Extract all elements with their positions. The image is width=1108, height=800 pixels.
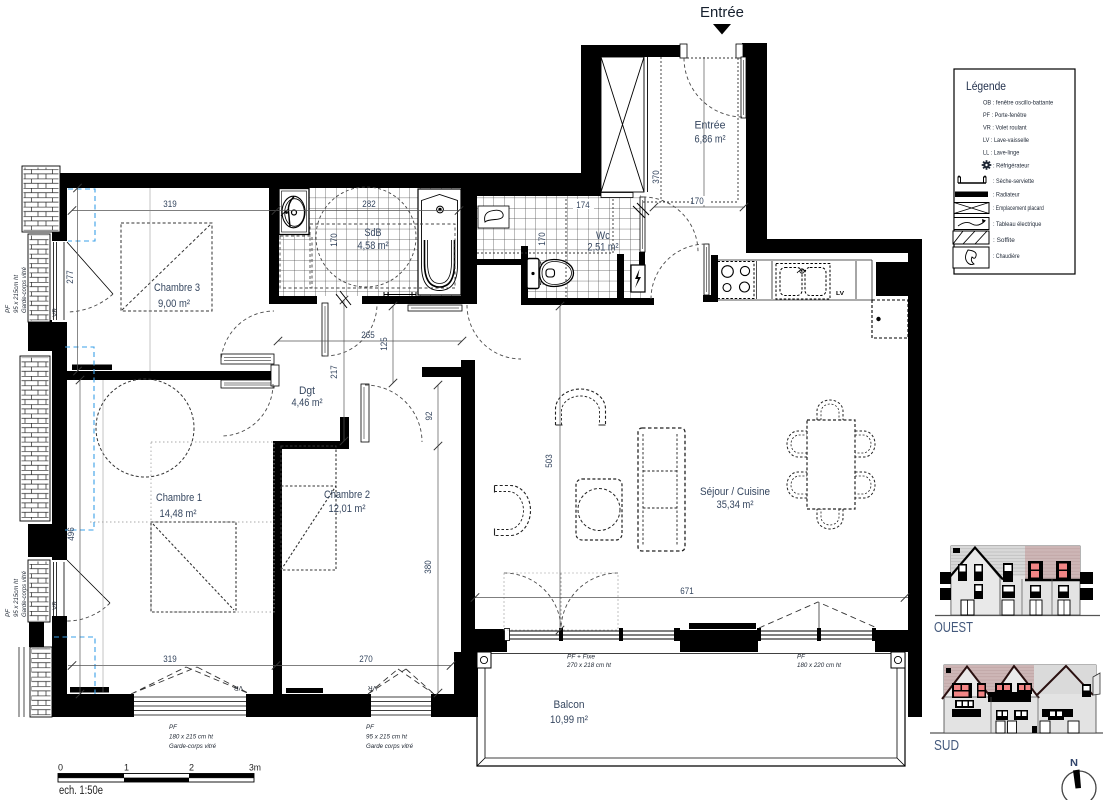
svg-text:: Tableau électrique: : Tableau électrique	[993, 221, 1042, 228]
svg-text:PF: PF	[366, 724, 375, 731]
svg-text:OB : fenêtre oscillo-battante: OB : fenêtre oscillo-battante	[983, 100, 1054, 107]
svg-text:Garde corps vitré: Garde corps vitré	[366, 743, 413, 750]
svg-text:370: 370	[651, 170, 662, 183]
svg-text:PF + Fixe: PF + Fixe	[567, 654, 595, 661]
svg-text:: Radiateur: : Radiateur	[993, 192, 1020, 199]
svg-text:671: 671	[680, 586, 693, 597]
svg-text:4,46 m²: 4,46 m²	[292, 397, 323, 409]
svg-text:380: 380	[423, 560, 434, 573]
svg-text:265: 265	[361, 330, 374, 341]
svg-text:180 x 215 cm ht: 180 x 215 cm ht	[169, 734, 214, 741]
svg-text:PF: PF	[169, 724, 178, 731]
svg-text:95 x 215cm ht: 95 x 215cm ht	[13, 578, 20, 617]
svg-text:: Emplacement placard: : Emplacement placard	[993, 205, 1044, 212]
svg-text:282: 282	[362, 199, 375, 210]
svg-text:ech. 1:50e: ech. 1:50e	[59, 785, 103, 797]
svg-text:14,48 m²: 14,48 m²	[160, 508, 197, 520]
svg-text:496: 496	[66, 527, 77, 540]
svg-text:PF: PF	[797, 654, 806, 661]
svg-text:OUEST: OUEST	[934, 620, 973, 636]
svg-text:PF: PF	[5, 608, 12, 617]
svg-text:LL : Lave-linge: LL : Lave-linge	[983, 150, 1020, 157]
svg-text:2: 2	[189, 763, 194, 773]
svg-text:VR: VR	[53, 307, 59, 317]
svg-text:174: 174	[576, 200, 589, 211]
svg-text:92: 92	[424, 412, 435, 421]
svg-text:SdB: SdB	[365, 227, 382, 239]
svg-text:VR: VR	[53, 600, 59, 610]
svg-text:PF: PF	[5, 304, 12, 313]
svg-text:95 x 215cm ht: 95 x 215cm ht	[13, 274, 20, 313]
svg-text:6,86 m²: 6,86 m²	[695, 134, 726, 146]
svg-text:170: 170	[690, 196, 703, 207]
svg-text:: Soffite: : Soffite	[993, 237, 1015, 244]
svg-text:Séjour / Cuisine: Séjour / Cuisine	[700, 486, 770, 498]
svg-text:170: 170	[329, 233, 340, 246]
svg-text:VR : Volet roulant: VR : Volet roulant	[983, 125, 1027, 132]
svg-text:10,99 m²: 10,99 m²	[550, 714, 588, 726]
svg-text:270: 270	[359, 654, 372, 665]
svg-text:503: 503	[544, 454, 555, 467]
svg-text:Chambre 3: Chambre 3	[154, 282, 200, 294]
svg-text:Garde-corps vitré: Garde-corps vitré	[21, 571, 28, 617]
svg-text:: Sèche-serviette: : Sèche-serviette	[993, 178, 1035, 185]
svg-text:1: 1	[124, 763, 129, 773]
svg-text:Chambre 2: Chambre 2	[324, 489, 370, 501]
svg-text:N: N	[1070, 757, 1078, 769]
svg-text:Légende: Légende	[966, 79, 1006, 93]
svg-text:LV: LV	[836, 291, 844, 297]
svg-text:PF : Porte-fenêtre: PF : Porte-fenêtre	[983, 112, 1027, 119]
svg-text:319: 319	[163, 654, 176, 665]
svg-text:277: 277	[65, 270, 76, 283]
svg-text:: Chaudière: : Chaudière	[993, 253, 1020, 260]
svg-text:Chambre 1: Chambre 1	[156, 492, 202, 504]
svg-text:VR: VR	[367, 684, 377, 690]
svg-text:9,00 m²: 9,00 m²	[158, 298, 190, 310]
svg-text:170: 170	[537, 232, 548, 245]
svg-text:12,01 m²: 12,01 m²	[329, 503, 366, 515]
svg-text:Garde-corps vitré: Garde-corps vitré	[21, 267, 28, 313]
svg-text:95 x 215 cm ht: 95 x 215 cm ht	[366, 734, 408, 741]
svg-text:Entrée: Entrée	[695, 120, 726, 132]
svg-text:319: 319	[163, 199, 176, 210]
svg-text:VR: VR	[233, 684, 243, 690]
svg-text:: Réfrigérateur: : Réfrigérateur	[993, 163, 1029, 170]
svg-text:Wc: Wc	[596, 230, 610, 242]
svg-text:2,51 m²: 2,51 m²	[588, 242, 619, 254]
svg-text:35,34 m²: 35,34 m²	[717, 499, 754, 511]
svg-text:SUD: SUD	[934, 738, 959, 754]
svg-text:Entrée: Entrée	[700, 4, 744, 21]
svg-text:4,58 m²: 4,58 m²	[358, 240, 389, 252]
svg-text:217: 217	[329, 365, 340, 378]
svg-text:Garde-corps vitré: Garde-corps vitré	[169, 743, 216, 750]
svg-text:3m: 3m	[249, 763, 261, 773]
svg-text:Dgt: Dgt	[299, 385, 316, 397]
svg-text:Balcon: Balcon	[554, 699, 585, 711]
svg-text:0: 0	[58, 763, 63, 773]
svg-text:180 x 220 cm ht: 180 x 220 cm ht	[797, 662, 842, 669]
svg-text:125: 125	[379, 337, 390, 350]
svg-text:LV : Lave-vaisselle: LV : Lave-vaisselle	[983, 137, 1029, 144]
svg-text:270 x 218 cm ht: 270 x 218 cm ht	[566, 662, 612, 669]
